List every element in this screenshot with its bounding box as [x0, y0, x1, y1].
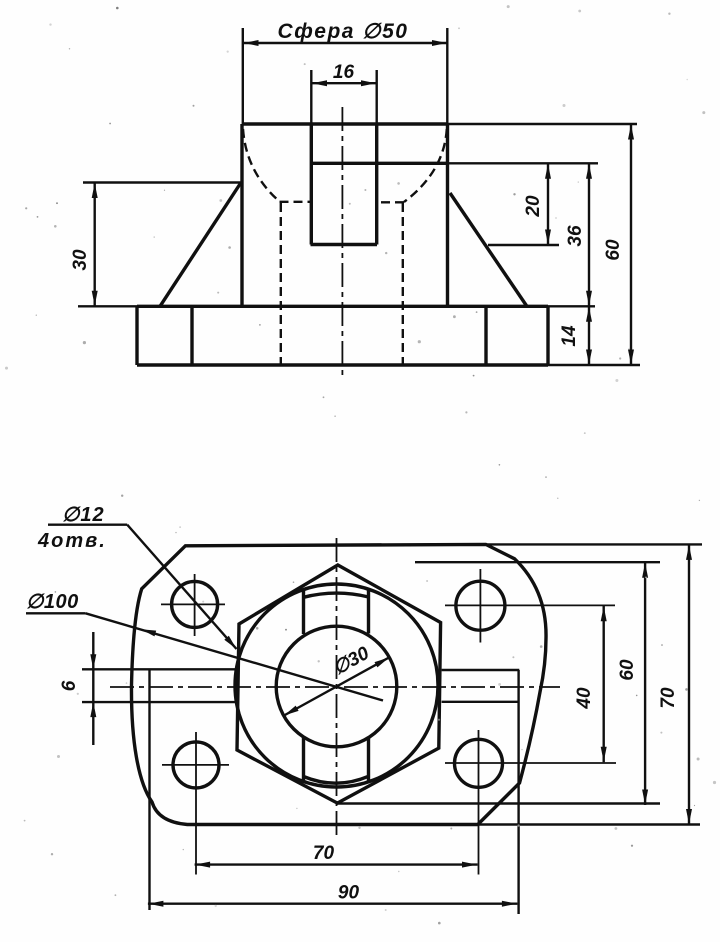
svg-text:∅100: ∅100	[26, 591, 79, 613]
svg-text:70: 70	[658, 687, 679, 709]
svg-text:16: 16	[333, 62, 355, 83]
svg-text:90: 90	[338, 883, 360, 904]
svg-text:Сфера ∅50: Сфера ∅50	[278, 20, 409, 43]
svg-text:30: 30	[70, 249, 91, 271]
svg-text:4отв.: 4отв.	[37, 530, 107, 552]
svg-text:70: 70	[313, 843, 335, 864]
svg-text:∅12: ∅12	[62, 504, 105, 526]
svg-text:60: 60	[603, 239, 624, 261]
svg-text:36: 36	[565, 225, 586, 247]
svg-text:60: 60	[617, 659, 638, 681]
svg-text:6: 6	[59, 680, 80, 691]
svg-text:20: 20	[523, 195, 544, 218]
svg-text:40: 40	[574, 687, 595, 710]
svg-text:14: 14	[559, 325, 580, 347]
